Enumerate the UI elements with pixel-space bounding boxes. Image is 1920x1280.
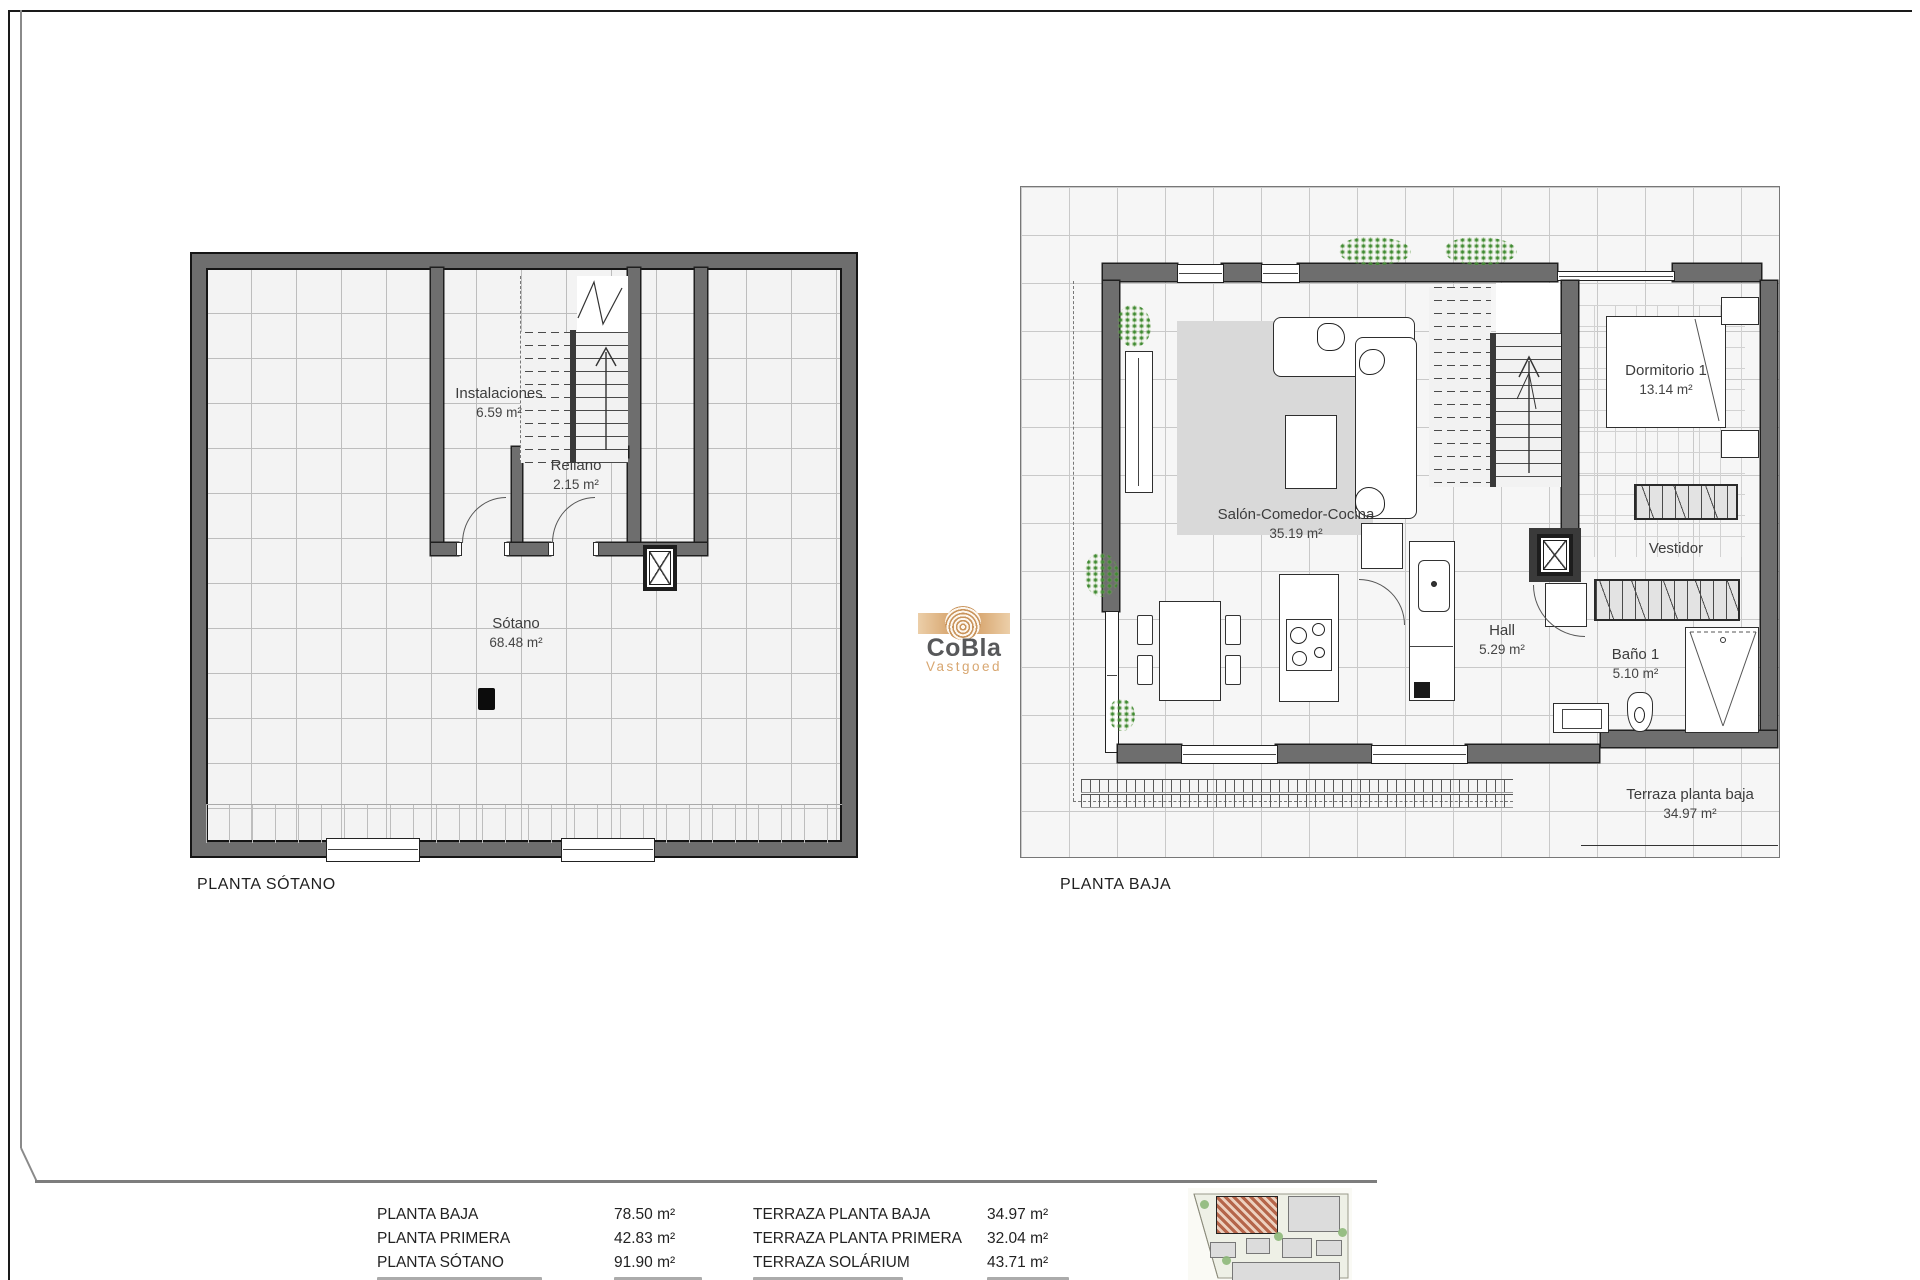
room-label-sotano: Sótano 68.48 m² xyxy=(441,614,591,652)
exterior-wall xyxy=(1103,264,1177,281)
area-label: PLANTA PRIMERA xyxy=(377,1230,607,1248)
sheet-border-left xyxy=(8,10,10,1280)
inner-frame-left xyxy=(20,10,22,1148)
room-name: Vestidor xyxy=(1649,540,1703,557)
area-value: 43.71 m² xyxy=(987,1254,1083,1272)
stair-direction-arrow xyxy=(584,330,626,456)
site-building xyxy=(1316,1240,1342,1256)
coffee-table xyxy=(1285,415,1337,489)
elevator-x-icon xyxy=(1544,541,1566,569)
room-area: 34.97 m² xyxy=(1663,806,1716,821)
door-jamb xyxy=(593,542,599,556)
room-area: 5.29 m² xyxy=(1479,642,1525,657)
exterior-wall-bottom xyxy=(1118,745,1181,762)
site-plan-thumbnail xyxy=(1188,1188,1352,1280)
area-value: 91.90 m² xyxy=(614,1254,714,1272)
room-name: Hall xyxy=(1489,622,1515,639)
window xyxy=(1261,264,1300,283)
terrace-railing xyxy=(1081,794,1513,808)
room-name: Sótano xyxy=(492,615,540,632)
counter-divider xyxy=(1410,646,1453,647)
areas-table: PLANTA BAJA 78.50 m² TERRAZA PLANTA BAJA… xyxy=(377,1206,1083,1280)
room-label-instalaciones: Instalaciones 6.59 m² xyxy=(424,384,574,422)
room-label-terraza: Terraza planta baja 34.97 m² xyxy=(1603,785,1777,823)
glass-wall xyxy=(1105,611,1119,753)
shelf-line xyxy=(1138,358,1139,486)
terrace-boundary-line xyxy=(1581,845,1778,846)
stair-direction-arrow xyxy=(1509,339,1551,479)
chair xyxy=(1225,655,1241,685)
title-block-divider xyxy=(35,1180,1377,1183)
stair-treads-dash-gaps xyxy=(1429,287,1491,487)
room-area: 13.14 m² xyxy=(1639,382,1692,397)
area-label: TERRAZA PLANTA PRIMERA xyxy=(753,1230,979,1248)
room-area: 68.48 m² xyxy=(489,635,542,650)
shower xyxy=(1685,627,1759,733)
exterior-wall-bottom xyxy=(1276,745,1371,762)
area-value: 32.04 m² xyxy=(987,1230,1083,1248)
sliding-window xyxy=(1181,745,1278,764)
nightstand xyxy=(1721,430,1759,458)
toilet xyxy=(1627,692,1653,732)
site-tree xyxy=(1274,1232,1283,1241)
site-tree xyxy=(1222,1256,1231,1265)
exterior-wall xyxy=(1298,264,1557,281)
shower-tray-lines xyxy=(1686,628,1760,734)
drawing-sheet: Instalaciones 6.59 m² Rellano 2.15 m² Só… xyxy=(0,0,1920,1280)
room-area: 5.10 m² xyxy=(1613,666,1659,681)
site-tree xyxy=(1338,1228,1347,1237)
sofa-pillow xyxy=(1317,323,1345,351)
appliance xyxy=(1414,682,1430,698)
elevator-shaft xyxy=(1537,534,1573,576)
exterior-wall xyxy=(1673,264,1761,281)
exterior-wall-right xyxy=(1761,281,1777,731)
room-area: 6.59 m² xyxy=(476,405,522,420)
planter-plant xyxy=(1445,237,1517,265)
room-name: Dormitorio 1 xyxy=(1625,362,1707,379)
floorplan-sotano: Instalaciones 6.59 m² Rellano 2.15 m² Só… xyxy=(192,254,856,856)
partition-wall xyxy=(695,268,707,555)
wardrobe xyxy=(1634,484,1738,520)
stair-treads-dashed xyxy=(1429,287,1491,487)
room-name: Salón-Comedor-Cocina xyxy=(1218,506,1375,523)
area-label: TERRAZA PLANTA BAJA xyxy=(753,1206,979,1224)
toilet-bowl xyxy=(1634,707,1645,723)
stair-wall xyxy=(1562,281,1578,531)
sink-drain xyxy=(1431,581,1437,587)
door-jamb xyxy=(548,542,554,556)
room-name: Baño 1 xyxy=(1612,646,1660,663)
exterior-wall-bottom xyxy=(1466,745,1599,762)
site-building xyxy=(1246,1238,1270,1254)
basement-window xyxy=(561,838,655,862)
door-swing-arc xyxy=(462,497,506,543)
chair xyxy=(1225,615,1241,645)
washbasin xyxy=(1553,703,1609,733)
logo-subtitle: Vastgoed xyxy=(912,659,1016,674)
wardrobe xyxy=(1594,579,1740,621)
room-label-dormitorio: Dormitorio 1 13.14 m² xyxy=(1609,361,1723,399)
door-jamb xyxy=(456,542,462,556)
stair-landing xyxy=(1496,283,1560,333)
dining-table xyxy=(1159,601,1221,701)
cooktop-frame xyxy=(1286,619,1332,671)
room-name: Rellano xyxy=(551,457,602,474)
stair-stringer-wall xyxy=(1490,333,1496,487)
kitchen-sink xyxy=(1418,560,1450,612)
room-label-rellano: Rellano 2.15 m² xyxy=(511,456,641,494)
site-building xyxy=(1282,1238,1312,1258)
area-value: 78.50 m² xyxy=(614,1206,714,1224)
chair xyxy=(1137,655,1153,685)
elevator-shaft xyxy=(643,545,677,591)
site-building xyxy=(1210,1242,1236,1258)
chair xyxy=(1137,615,1153,645)
room-label-hall: Hall 5.29 m² xyxy=(1457,621,1547,659)
area-value: 34.97 m² xyxy=(987,1206,1083,1224)
door-swing-arc xyxy=(1359,579,1405,625)
stair-break-line xyxy=(572,274,632,328)
area-value: 42.83 m² xyxy=(614,1230,714,1248)
plan-title-baja: PLANTA BAJA xyxy=(1060,876,1171,894)
window-strip xyxy=(1557,271,1675,281)
basement-window xyxy=(326,838,420,862)
terrace-railing xyxy=(1081,779,1513,793)
media-shelf xyxy=(1125,351,1153,493)
floorplan-baja: Dormitorio 1 13.14 m² Vestidor Hall 5.29… xyxy=(1020,186,1780,858)
room-area: 35.19 m² xyxy=(1269,526,1322,541)
site-tree xyxy=(1200,1200,1209,1209)
plant xyxy=(1109,699,1135,731)
highlighted-unit xyxy=(1216,1196,1278,1234)
room-label-bano: Baño 1 5.10 m² xyxy=(1583,645,1688,683)
plant xyxy=(1085,553,1119,597)
area-label: PLANTA SÓTANO xyxy=(377,1254,607,1272)
cobla-logo: CoBla Vastgoed xyxy=(912,608,1028,680)
kitchen-counter xyxy=(1409,541,1455,701)
plan-title-sotano: PLANTA SÓTANO xyxy=(197,876,336,894)
elevator-x-icon xyxy=(650,552,670,584)
room-area: 2.15 m² xyxy=(553,477,599,492)
structural-column xyxy=(478,688,495,710)
area-label: PLANTA BAJA xyxy=(377,1206,607,1224)
room-label-vestidor: Vestidor xyxy=(1621,539,1731,558)
partition-wall xyxy=(508,543,550,555)
area-label: TERRAZA SOLÁRIUM xyxy=(753,1254,979,1272)
stair-dashed-boundary xyxy=(520,276,521,463)
door-swing-arc xyxy=(552,497,595,543)
nightstand xyxy=(1721,297,1759,325)
table-row: PLANTA PRIMERA 42.83 m² TERRAZA PLANTA P… xyxy=(377,1230,1083,1252)
kitchen-island xyxy=(1279,574,1339,702)
site-building xyxy=(1288,1196,1340,1232)
door-jamb xyxy=(504,542,510,556)
table-row: PLANTA SÓTANO 91.90 m² TERRAZA SOLÁRIUM … xyxy=(377,1254,1083,1276)
plant xyxy=(1117,305,1151,347)
floor-tile-band xyxy=(206,804,842,843)
site-building xyxy=(1232,1262,1340,1280)
terrace-dashed-boundary xyxy=(1073,281,1074,801)
table-row: PLANTA BAJA 78.50 m² TERRAZA PLANTA BAJA… xyxy=(377,1206,1083,1228)
room-name: Instalaciones xyxy=(455,385,543,402)
planter-plant xyxy=(1339,237,1411,265)
room-label-salon: Salón-Comedor-Cocina 35.19 m² xyxy=(1201,505,1391,543)
exterior-wall xyxy=(1222,264,1261,281)
window xyxy=(1177,264,1224,283)
sliding-window xyxy=(1371,745,1468,764)
sheet-border-top xyxy=(8,10,1912,12)
washbasin-bowl xyxy=(1562,709,1602,729)
partition-wall xyxy=(431,543,458,555)
room-name: Terraza planta baja xyxy=(1626,786,1754,803)
